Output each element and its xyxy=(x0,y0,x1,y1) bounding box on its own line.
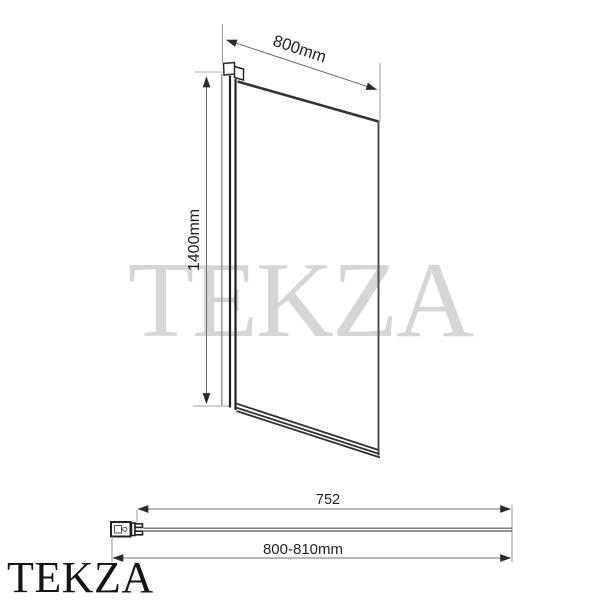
profile-top-cap xyxy=(224,63,236,76)
front-view-drawing: 800mm 1400mm xyxy=(186,24,380,458)
overall-width-dimension-label: 800-810mm xyxy=(263,541,343,558)
glass-width-dimension-label: 752 xyxy=(316,492,340,508)
clamp-jaw-top xyxy=(135,524,143,528)
brand-logo-text: TEKZA xyxy=(7,556,154,600)
wall-profile-section xyxy=(111,522,131,537)
shower-screen-technical-drawing: 800mm 1400mm xyxy=(0,0,600,600)
bottom-seal-strip xyxy=(237,411,381,458)
profile-top-cap xyxy=(235,67,244,81)
glass-top-edge xyxy=(238,82,379,122)
bottom-seal-strip xyxy=(236,408,380,455)
bottom-seal-strip xyxy=(236,404,379,451)
clamp-jaw-bottom xyxy=(135,531,143,535)
top-view-drawing: 752 800-810mm xyxy=(111,492,512,562)
height-dimension-label: 1400mm xyxy=(186,209,203,271)
drawing-canvas: TEKZA 800mm 1400mm xyxy=(0,0,600,600)
width-dimension-label: 800mm xyxy=(271,32,329,67)
